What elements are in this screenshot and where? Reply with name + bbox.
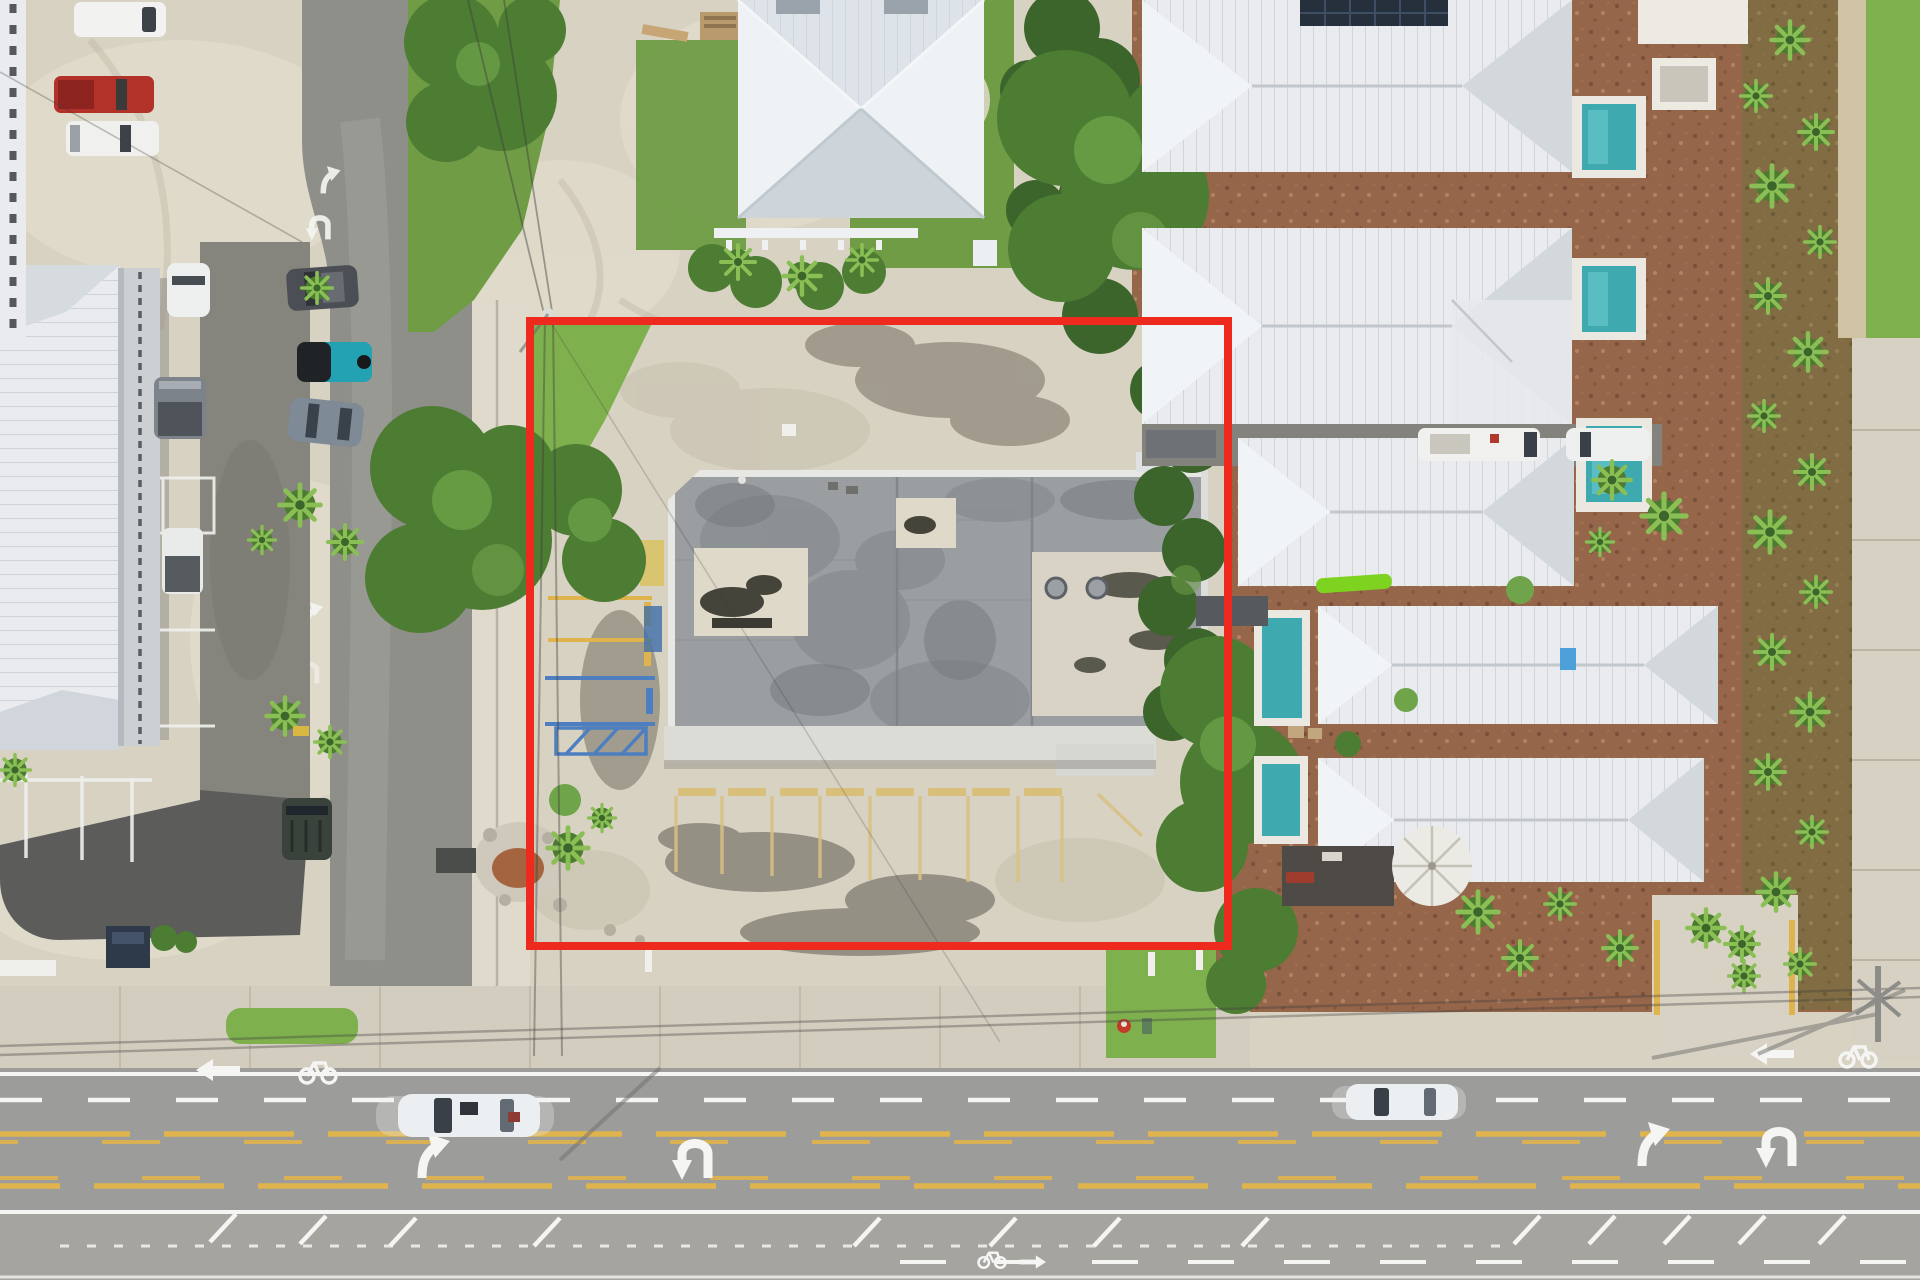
lot-corner-palm	[588, 804, 615, 831]
painted-curb	[0, 960, 56, 976]
roof-patch-b	[896, 498, 956, 548]
white-debris	[782, 424, 796, 436]
car-white-sedan-parked	[167, 263, 210, 317]
townhouse-roof-row4	[1318, 606, 1718, 724]
covered-walkway	[124, 268, 160, 746]
deck-chair	[1288, 726, 1304, 738]
utility-equipment	[1146, 430, 1216, 458]
neighbor-roof-edge	[0, 0, 26, 340]
car-dark-jeep	[282, 798, 332, 860]
car-blue-sedan	[287, 396, 365, 447]
car-teal-jeep	[297, 342, 372, 382]
car-white-sedan-highway	[376, 1094, 554, 1137]
pergola	[1282, 846, 1394, 906]
car-white-highway-right	[1332, 1084, 1466, 1120]
dumpster	[436, 848, 476, 873]
deck-chair	[1308, 728, 1322, 739]
roof-fan	[1046, 578, 1066, 598]
shrub	[549, 784, 581, 816]
car-gray-pickup	[154, 377, 206, 439]
blue-bin	[1560, 648, 1576, 670]
aerial-photo	[0, 0, 1920, 1280]
car-white-pickup	[162, 528, 203, 594]
blue-tarp	[644, 606, 662, 652]
aerial-scene	[0, 0, 1920, 1280]
house-porch-rail	[714, 228, 918, 238]
car-white-van-townhouse	[1418, 428, 1540, 461]
townhouse-roof-row1	[1142, 0, 1572, 172]
commercial-building	[664, 452, 1208, 776]
yellow-object	[293, 726, 309, 736]
pool	[1572, 96, 1646, 178]
car-red-pickup	[54, 76, 154, 113]
roof-fan	[1087, 578, 1107, 598]
far-right-grass	[1866, 0, 1920, 338]
pool	[1254, 610, 1310, 726]
roof-patch-a	[694, 548, 808, 636]
pool	[1572, 258, 1646, 340]
house	[714, 0, 984, 250]
car-white-van	[74, 2, 166, 37]
white-post	[1148, 952, 1155, 976]
townhouse-roof-row2	[1142, 228, 1572, 424]
concrete-apron	[0, 986, 1250, 1074]
right-sidewalk	[1852, 338, 1920, 1060]
white-post	[645, 948, 652, 972]
car-white-suv-townhouse	[1566, 428, 1650, 461]
pool	[1254, 756, 1308, 844]
patio-umbrella	[1392, 826, 1472, 906]
lot-corner-palm	[548, 828, 589, 869]
car-white-suv	[66, 121, 159, 156]
